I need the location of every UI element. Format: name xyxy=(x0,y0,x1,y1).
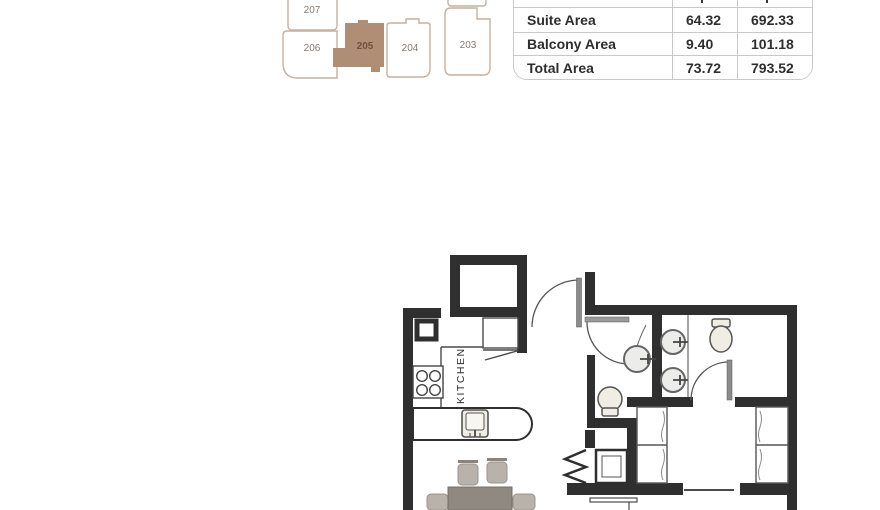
unit-label-204: 204 xyxy=(402,43,419,54)
vanity-sink-symbol xyxy=(661,330,688,354)
chair xyxy=(513,494,535,510)
kitchen-sink-symbol xyxy=(462,410,488,437)
unit-label-206: 206 xyxy=(304,43,321,54)
floorplan-drawing: KITCHEN xyxy=(398,250,802,510)
wall-segment xyxy=(652,312,662,397)
table-row: Total Area 73.72 793.52 xyxy=(514,55,812,79)
row-label: Balcony Area xyxy=(514,36,672,52)
sqm-value: 73.72 xyxy=(672,56,737,79)
kitchen-partition-lines xyxy=(441,318,518,408)
wall-segment xyxy=(585,430,595,448)
sqft-value: 692.33 xyxy=(737,8,812,32)
chair xyxy=(487,462,507,483)
keyplan: 207 206 205 204 203 xyxy=(280,0,496,84)
dining-table xyxy=(448,487,512,510)
wall-segment xyxy=(403,308,441,318)
entry-door-symbol xyxy=(532,278,582,327)
sqm-value: 9.40 xyxy=(672,33,737,55)
powder-toilet-symbol xyxy=(598,387,622,416)
sqft-value: 793.52 xyxy=(737,56,812,79)
unit-label-207: 207 xyxy=(304,5,321,16)
wall-segment xyxy=(627,397,693,407)
chair-back xyxy=(458,460,478,463)
wall-segment xyxy=(587,418,627,428)
accordion-door-symbol xyxy=(565,450,586,483)
keyplan-unit-partial xyxy=(448,0,486,6)
wall-segment xyxy=(585,305,797,315)
unit-label-205: 205 xyxy=(357,41,374,52)
table-row: Balcony Area 9.40 101.18 xyxy=(514,32,812,55)
row-label: Total Area xyxy=(514,60,672,76)
chair xyxy=(427,494,448,510)
sqft-value: 101.18 xyxy=(737,33,812,55)
stove-symbol xyxy=(413,366,443,398)
table-row: Suite Area 64.32 692.33 xyxy=(514,7,812,32)
column-header-sqft: Sq.ft xyxy=(737,0,812,7)
area-table: Sq.m Sq.ft Suite Area 64.32 692.33 Balco… xyxy=(513,0,813,80)
angled-counter-line xyxy=(485,351,517,360)
ensuite-toilet-symbol xyxy=(710,319,732,352)
pillar xyxy=(417,321,436,339)
closet-symbol xyxy=(756,407,788,483)
entry-closet-room xyxy=(455,260,522,312)
wall-segment xyxy=(587,355,595,420)
wall-segment xyxy=(403,308,413,510)
chair xyxy=(458,464,478,485)
unit-label-203: 203 xyxy=(460,40,477,51)
kitchen-room-label: KITCHEN xyxy=(455,347,467,404)
vanity-sink-symbol xyxy=(661,368,688,392)
washer-symbol xyxy=(596,450,627,483)
wall-segment xyxy=(567,483,683,495)
dining-set xyxy=(427,458,535,510)
wall-segment xyxy=(627,418,637,485)
wall-segment xyxy=(740,483,797,495)
floorplan-page: Sq.m Sq.ft Suite Area 64.32 692.33 Balco… xyxy=(0,0,880,510)
row-label: Suite Area xyxy=(514,12,672,28)
column-header-sqm: Sq.m xyxy=(672,0,737,7)
powder-round-sink-symbol xyxy=(624,346,656,372)
wardrobe-symbol xyxy=(637,407,667,483)
wall-segment xyxy=(735,397,797,407)
sqm-value: 64.32 xyxy=(672,8,737,32)
bathroom-door-symbol xyxy=(691,360,732,400)
keyplan-unit-206[interactable] xyxy=(283,31,337,78)
chair-back xyxy=(487,458,507,461)
area-table-header-row: Sq.m Sq.ft xyxy=(514,0,812,7)
